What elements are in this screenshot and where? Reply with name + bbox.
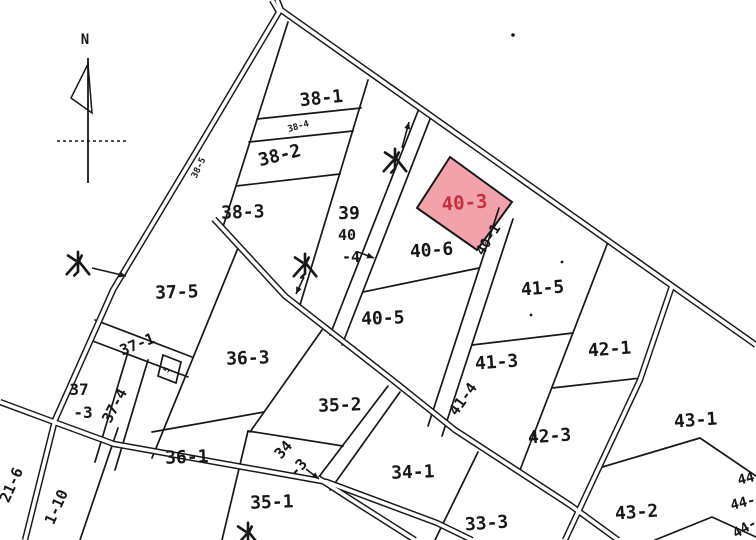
parcel-label-38_3: 38-3 — [221, 201, 265, 224]
parcel-label-33_3: 33-3 — [464, 512, 509, 536]
survey-dot-3 — [530, 314, 533, 317]
parcel-label-36_3: 36-3 — [226, 347, 270, 370]
parcel-label-37: 37 — [69, 380, 88, 399]
parcel-label-35_1: 35-1 — [250, 491, 294, 514]
parcel-label-43_1: 43-1 — [673, 409, 718, 433]
parcel-label-36_1: 36-1 — [165, 446, 209, 469]
parcel-label-_3: -3 — [73, 403, 92, 422]
parcel-label-37_5: 37-5 — [155, 281, 199, 304]
parcel-label-34_1: 34-1 — [391, 461, 435, 484]
parcel-label-42_1: 42-1 — [587, 338, 632, 362]
cadastral-map-page: 38-138-438-238-338-53940-440-640-540-141… — [0, 0, 756, 540]
parcel-label-40: 40 — [338, 226, 356, 244]
map-canvas: 38-138-438-238-338-53940-440-640-540-141… — [0, 0, 756, 540]
parcel-label-40_5: 40-5 — [361, 307, 405, 330]
parcel-label-43_2: 43-2 — [614, 501, 659, 525]
parcel-label-41_3: 41-3 — [474, 351, 519, 375]
survey-dot-2 — [561, 261, 564, 264]
parcel-label-40-3-highlighted: 40-3 — [441, 190, 488, 215]
survey-dot-1 — [511, 33, 515, 37]
parcel-label-39: 39 — [338, 203, 360, 224]
parcel-label-35_2: 35-2 — [318, 394, 362, 417]
parcel-label-40_6: 40-6 — [409, 239, 454, 263]
parcel-label-_4: -4 — [342, 248, 360, 266]
parcel-label-42_3: 42-3 — [527, 425, 572, 449]
compass-north-label: N — [81, 32, 89, 48]
parcel-label-41_5: 41-5 — [520, 277, 565, 301]
